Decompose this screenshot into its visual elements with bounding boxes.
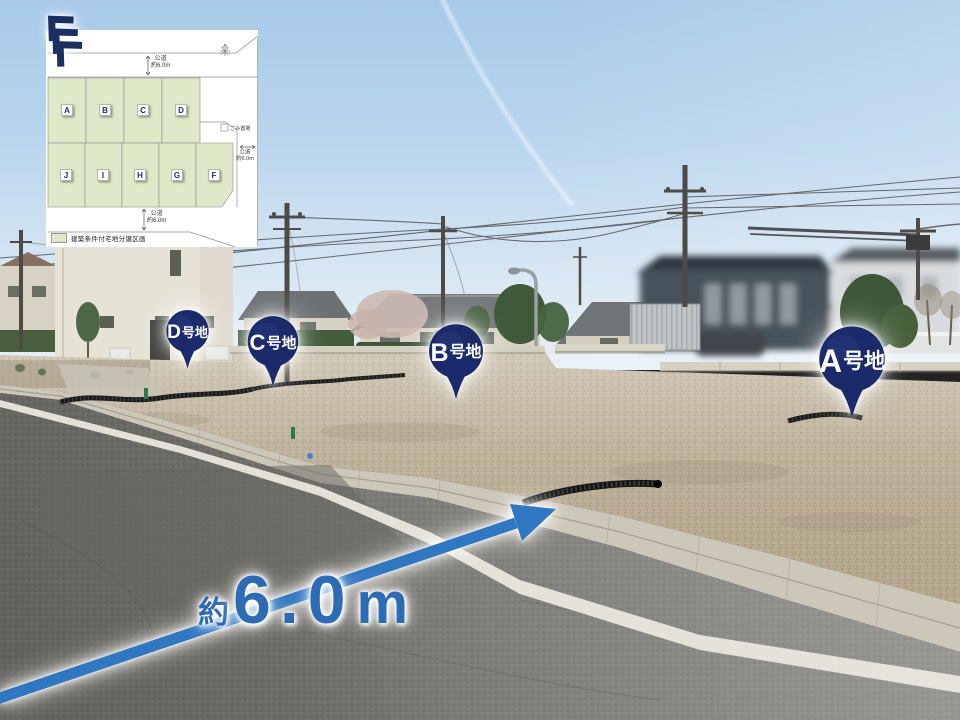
map-legend: 建築条件付宅地分譲区画 <box>51 233 146 243</box>
road-label-top: 公道 約6.0m <box>151 56 170 70</box>
road-width-value: 6.0 <box>233 566 355 634</box>
road-width: 約6.0m <box>147 218 166 225</box>
pin-label: B号地 <box>426 328 486 379</box>
lot-label-h: H <box>134 169 146 181</box>
road-width-prefix: 約 <box>198 597 229 628</box>
road-label-right: 公道 約6.0m <box>236 150 254 163</box>
lot-label-d: D <box>175 104 187 116</box>
site-photo: 約 6.0 m D号地 C号地 B号地 <box>0 0 960 720</box>
lot-label-a: A <box>61 104 73 116</box>
road-width: 約6.0m <box>236 156 254 162</box>
legend-label: 建築条件付宅地分譲区画 <box>71 233 146 243</box>
pin-label: A号地 <box>814 331 890 392</box>
road-width-unit: m <box>357 575 409 633</box>
lot-pin-a: A号地 <box>814 325 890 421</box>
lot-label-g: G <box>171 169 183 181</box>
lot-label-b: B <box>99 104 111 116</box>
road-width-text: 約 6.0 m <box>198 566 408 634</box>
road-label-bottom: 公道 約6.0m <box>147 211 166 225</box>
lot-pin-b: B号地 <box>426 323 486 402</box>
pin-suffix: 号地 <box>450 345 482 361</box>
pin-letter: A <box>819 345 842 377</box>
pin-letter: C <box>250 332 266 354</box>
lot-label-i: I <box>97 169 109 181</box>
garbage-station-note: ごみ置場 <box>230 124 250 132</box>
pin-letter: D <box>167 323 181 342</box>
pin-suffix: 号地 <box>266 336 296 351</box>
road-name: 公道 <box>155 56 167 63</box>
road-width: 約6.0m <box>151 63 170 70</box>
logo-icon <box>28 14 88 74</box>
pin-suffix: 号地 <box>182 326 208 339</box>
legend-swatch <box>51 233 67 243</box>
lot-pin-c: C号地 <box>245 315 301 389</box>
pin-label: D号地 <box>164 313 211 353</box>
pin-suffix: 号地 <box>843 351 885 372</box>
contrail <box>438 0 572 205</box>
lot-pin-d: D号地 <box>164 309 211 371</box>
company-logo <box>28 14 88 74</box>
lot-label-j: J <box>60 169 72 181</box>
pin-label: C号地 <box>245 319 301 366</box>
pin-letter: B <box>430 341 448 366</box>
north-compass-icon <box>220 44 230 56</box>
lot-cells <box>48 78 233 207</box>
lot-label-c: C <box>137 104 149 116</box>
road-name: 公道 <box>151 211 163 218</box>
lot-label-f: F <box>208 169 220 181</box>
